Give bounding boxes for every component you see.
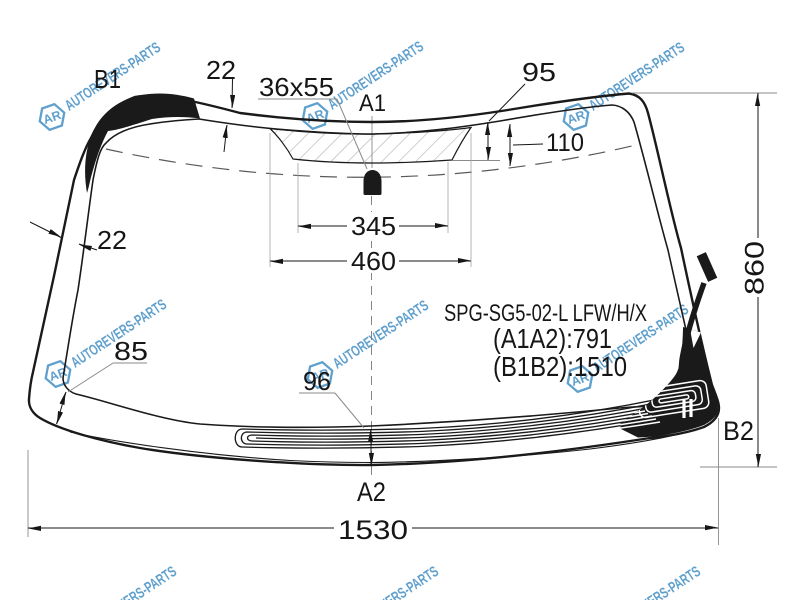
svg-text:A1: A1 [359,90,386,117]
svg-text:95: 95 [522,57,556,87]
svg-text:460: 460 [351,246,396,276]
svg-text:1530: 1530 [338,515,408,545]
svg-text:345: 345 [351,211,396,241]
svg-text:96: 96 [303,366,331,396]
svg-text:110: 110 [546,129,584,157]
svg-text:B1: B1 [94,64,121,94]
svg-text:(A1A2):791: (A1A2):791 [493,323,612,354]
svg-text:85: 85 [114,336,148,366]
svg-text:36x55: 36x55 [259,72,334,102]
svg-text:A2: A2 [357,477,386,507]
svg-text:22: 22 [97,225,127,255]
svg-text:(B1B2):1510: (B1B2):1510 [493,351,627,382]
svg-text:860: 860 [740,241,770,295]
svg-text:B2: B2 [723,416,754,446]
svg-text:22: 22 [206,55,236,85]
